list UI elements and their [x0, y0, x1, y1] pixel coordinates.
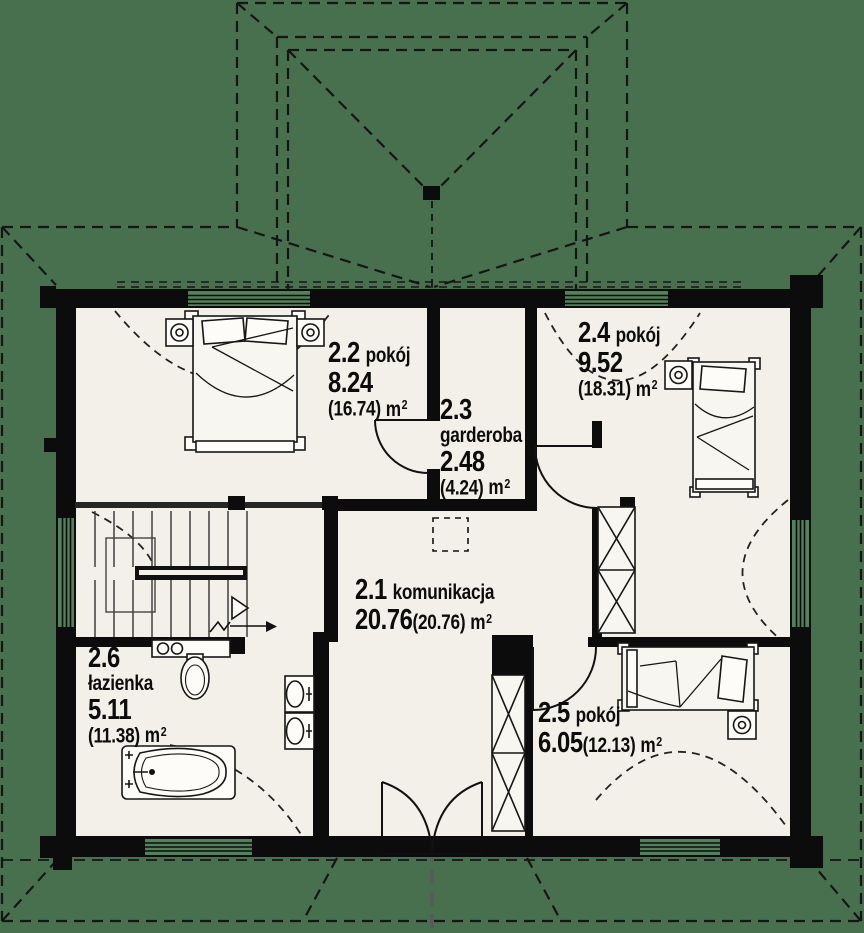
room-floor-area: (4.24)m2 — [440, 477, 522, 499]
room-title: 2.2pokój — [328, 338, 410, 368]
room-number: 2.3 — [440, 395, 522, 425]
room-floor-area: (11.38)m2 — [88, 725, 166, 747]
room-label-garderoba: 2.3 garderoba 2.48 (4.24)m2 — [440, 395, 522, 499]
room-area: 2.48 — [440, 447, 522, 477]
nightstand — [166, 319, 193, 346]
corner-quoin — [40, 286, 56, 308]
room-label-pokoj-2-2: 2.2pokój 8.24 (16.74)m2 — [328, 338, 410, 420]
room-floor-area: (18.31)m2 — [578, 378, 660, 400]
washbasin — [285, 713, 314, 749]
bathtub — [122, 746, 235, 799]
wardrobe-room-2-4 — [598, 507, 635, 633]
room-floor-area: (16.74)m2 — [328, 398, 410, 420]
window-left — [58, 518, 74, 627]
drain — [149, 769, 155, 775]
log-end-tick — [44, 438, 56, 452]
room-area: 20.76(20.76)m2 — [355, 605, 494, 635]
washbasin — [285, 676, 314, 712]
floor-plan-drawing — [0, 0, 864, 933]
room-name: łazienka — [88, 673, 166, 695]
room-number: 2.6 — [88, 643, 166, 673]
room-area: 6.05(12.13)m2 — [538, 728, 662, 758]
window-top-left — [188, 291, 310, 306]
pillow — [718, 656, 747, 702]
room-title: 2.1komunikacja — [355, 575, 494, 605]
window-bottom-left — [145, 839, 252, 855]
room-label-pokoj-2-4: 2.4pokój 9.52 (18.31)m2 — [578, 318, 660, 400]
corner-quoin — [53, 857, 72, 870]
room-area: 8.24 — [328, 368, 410, 398]
corner-quoin — [790, 275, 823, 308]
room-name: garderoba — [440, 425, 522, 447]
window-right — [792, 520, 809, 627]
room-label-lazienka: 2.6 łazienka 5.11 (11.38)m2 — [88, 643, 166, 747]
window-top-right — [565, 291, 668, 306]
chimney — [423, 186, 440, 200]
pillow — [202, 318, 245, 344]
wardrobe-hall — [492, 675, 525, 831]
window-bottom-right — [640, 839, 720, 855]
room-label-pokoj-2-5: 2.5pokój 6.05(12.13)m2 — [538, 698, 662, 758]
washbasins — [285, 676, 314, 749]
room-area: 9.52 — [578, 348, 660, 378]
room-area: 5.11 — [88, 695, 166, 725]
nightstand — [297, 319, 324, 346]
room-title: 2.5pokój — [538, 698, 662, 728]
nightstand — [728, 711, 756, 739]
room-label-komunikacja: 2.1komunikacja 20.76(20.76)m2 — [355, 575, 494, 635]
nightstand — [665, 361, 692, 389]
floor-plan: 2.1komunikacja 20.76(20.76)m2 2.2pokój 8… — [0, 0, 864, 933]
pillow — [700, 366, 746, 392]
corner-quoin — [40, 836, 72, 858]
corner-quoin — [790, 836, 823, 868]
room-title: 2.4pokój — [578, 318, 660, 348]
